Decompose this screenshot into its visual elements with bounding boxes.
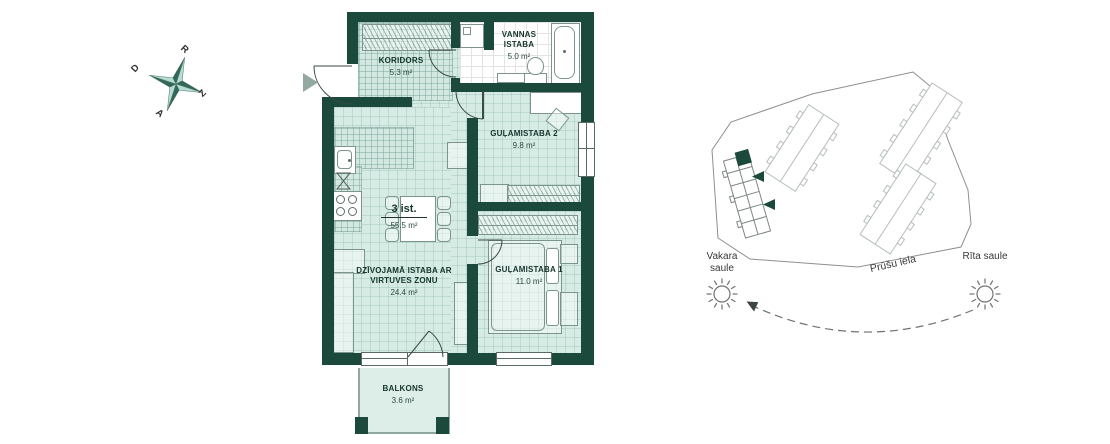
entrance-arrow-icon	[303, 73, 318, 92]
room-area: 5.0 m²	[494, 52, 544, 62]
sun-path-arrowhead	[747, 302, 759, 312]
site-plan	[707, 72, 1001, 332]
room-name: VANNAS ISTABA	[502, 30, 536, 49]
washing-machine	[460, 24, 484, 48]
room-label-gulamistaba1: GUĻAMISTABA 1 11.0 m²	[479, 265, 579, 287]
wall-top	[348, 12, 594, 22]
sun-icon	[970, 279, 1001, 310]
balcony-door-opening	[407, 352, 448, 366]
bedroom1-window	[496, 352, 552, 366]
room-area: 3.6 m²	[353, 396, 453, 406]
kitchen-sink	[334, 146, 356, 174]
building-entrance-marker	[752, 171, 764, 182]
balcony-post-left	[355, 417, 368, 434]
bath-sink	[497, 73, 525, 83]
hall-wardrobe	[362, 24, 452, 51]
subject-building	[718, 149, 771, 239]
entry-cabinet	[447, 142, 469, 169]
room-name: GUĻAMISTABA 2	[490, 129, 558, 138]
compass-north-label: Z	[197, 88, 209, 100]
bedroom2-cabinet	[480, 184, 509, 203]
building-outline	[876, 81, 965, 185]
apartment-summary: 3 ist. 55.5 m²	[381, 203, 427, 230]
dining-chair	[385, 228, 399, 242]
site-boundary	[712, 72, 971, 267]
room-area: 5.3 m²	[351, 68, 451, 78]
bed	[488, 240, 562, 334]
total-area: 55.5 m²	[381, 221, 427, 230]
dining-chair	[437, 228, 451, 242]
wall-left	[322, 97, 334, 365]
building-entrance-marker	[763, 199, 775, 210]
building-outline	[857, 162, 940, 256]
room-label-balkons: BALKONS 3.6 m²	[353, 384, 453, 406]
compass-rose-icon	[149, 57, 202, 110]
burner	[348, 195, 357, 204]
dining-chair	[437, 196, 451, 210]
balcony-window	[361, 352, 409, 366]
building-outline	[762, 102, 842, 193]
stove	[332, 191, 362, 221]
compass-south-label: D	[129, 62, 142, 74]
compass-west-label: R	[178, 43, 190, 56]
bathtub	[551, 23, 580, 84]
rooms-count: 3 ist.	[381, 203, 427, 218]
compass-east-label: A	[153, 107, 165, 120]
faucet	[348, 159, 351, 162]
nightstand	[560, 244, 578, 264]
wall-bath-upper	[451, 22, 460, 48]
room-name: GUĻAMISTABA 1	[495, 265, 563, 274]
wall-bath-bottom	[451, 83, 594, 92]
room-area: 24.4 m²	[356, 288, 452, 298]
room-label-vannas: VANNAS ISTABA 5.0 m²	[494, 30, 544, 62]
wall-hall-step	[322, 97, 412, 107]
wall-bath-stub	[484, 22, 494, 50]
bedroom2-window	[578, 122, 595, 177]
sun-path-arc	[753, 306, 973, 332]
bathtub-drain	[563, 50, 566, 53]
burner	[348, 207, 357, 216]
room-label-dzivojama: DZĪVOJAMĀ ISTABA AR VIRTUVES ZONU 24.4 m…	[356, 266, 452, 298]
room-label-gulamistaba2: GUĻAMISTABA 2 9.8 m²	[474, 129, 574, 151]
sun-icon	[707, 279, 738, 310]
mattress	[491, 243, 545, 331]
evening-sun-label: Vakara saule	[699, 251, 745, 275]
wall-bedrooms-low	[467, 264, 478, 365]
dining-chair	[437, 212, 451, 226]
room-name: BALKONS	[383, 384, 424, 393]
burner	[336, 207, 345, 216]
room-name: KORIDORS	[379, 56, 424, 65]
morning-sun-label: Rīta saule	[962, 251, 1008, 263]
pillow	[546, 290, 559, 326]
room-name: DZĪVOJAMĀ ISTABA AR VIRTUVES ZONU	[356, 266, 452, 285]
floorplan-page: KORIDORS 5.3 m² VANNAS ISTABA 5.0 m² GUĻ…	[0, 0, 1110, 444]
room-area: 11.0 m²	[479, 277, 579, 287]
balcony-post-right	[436, 417, 449, 434]
bedroom1-wardrobe	[478, 215, 578, 235]
dresser	[560, 292, 578, 326]
room-label-koridors: KORIDORS 5.3 m²	[351, 56, 451, 78]
wall-between-bedrooms	[467, 202, 594, 211]
highlighted-unit	[735, 149, 752, 166]
street-label: Prūšu iela	[853, 249, 934, 279]
washer-detail	[463, 27, 471, 35]
burner	[336, 195, 345, 204]
room-area: 9.8 m²	[474, 141, 574, 151]
wall-right	[581, 12, 594, 365]
